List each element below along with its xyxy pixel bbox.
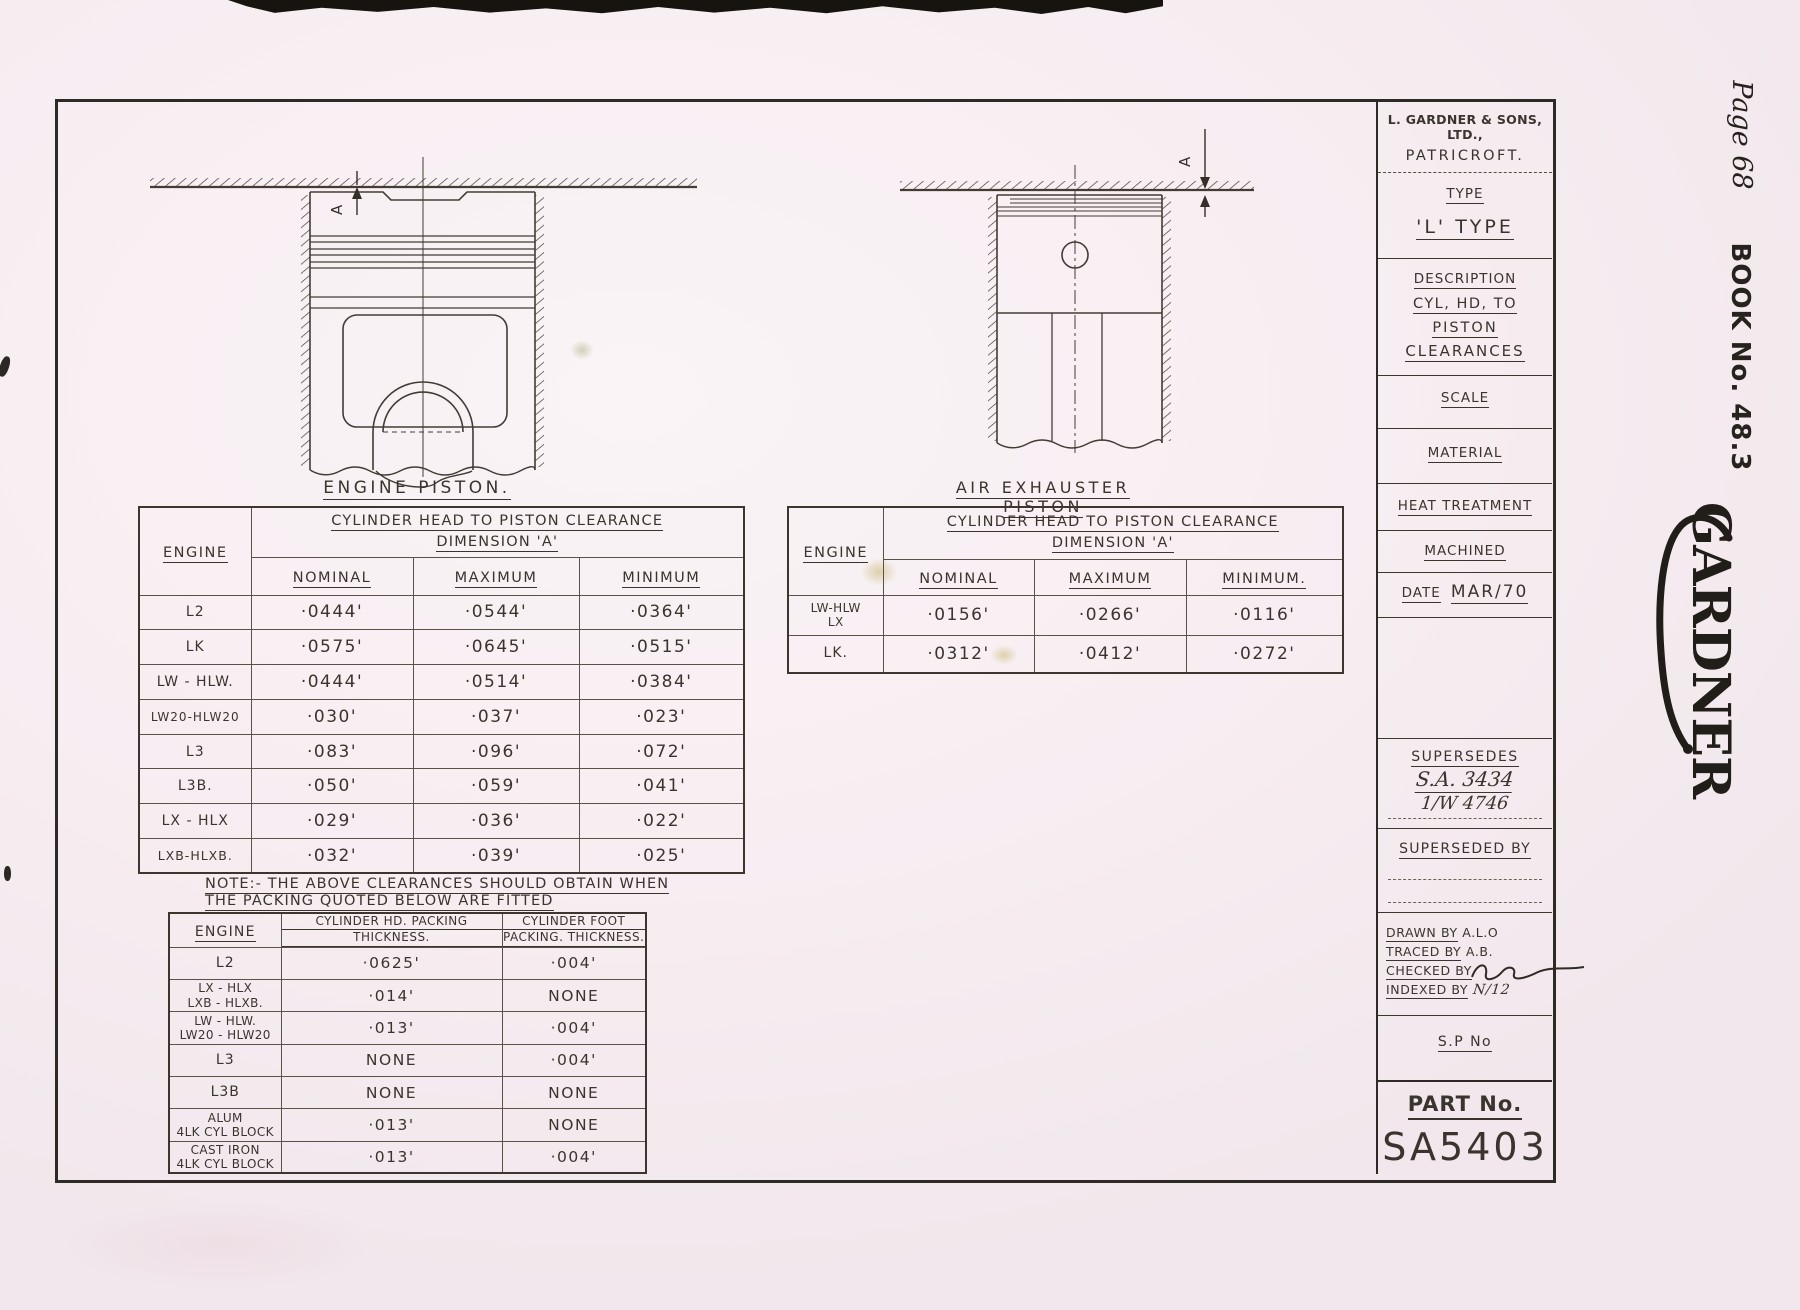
type-label: TYPE — [1446, 186, 1483, 204]
table-row: LW - HLW. LW20 - HLW20 ·013' ·004' — [169, 1012, 646, 1044]
cell-head-packing: ·013' — [281, 1012, 502, 1044]
cell-minimum: ·022' — [579, 804, 744, 839]
company-name: L. GARDNER & SONS, LTD., — [1378, 112, 1552, 142]
cell-maximum: ·0544' — [413, 595, 579, 630]
cell-engine: LX - HLX LXB - HLXB. — [169, 980, 281, 1012]
cell-engine: ALUM 4LK CYL BLOCK — [169, 1109, 281, 1141]
cell-minimum: ·025' — [579, 839, 744, 874]
table-row: LW20-HLW20 ·030' ·037' ·023' — [139, 699, 744, 734]
table-row: LX - HLX LXB - HLXB. ·014' NONE — [169, 980, 646, 1012]
clearance-note: NOTE:- THE ABOVE CLEARANCES SHOULD OBTAI… — [205, 876, 675, 910]
supersedes-value: 1/W 4746 — [1420, 793, 1510, 814]
cell-nominal: ·083' — [251, 734, 413, 769]
scale-label: SCALE — [1441, 390, 1489, 408]
paper-stain — [60, 1200, 380, 1290]
company-location: PATRICROFT. — [1378, 148, 1552, 164]
heat-treatment-label: HEAT TREATMENT — [1398, 498, 1533, 516]
dim-a-label: A — [1176, 156, 1194, 167]
engine-clearance-table: ENGINE CYLINDER HEAD TO PISTON CLEARANCE… — [138, 506, 745, 874]
cell-engine: LW20-HLW20 — [139, 699, 251, 734]
cell-minimum: ·041' — [579, 769, 744, 804]
col-header-minimum: MINIMUM. — [1186, 559, 1343, 595]
scan-edge-artifact — [228, 0, 1163, 14]
cell-maximum: ·0645' — [413, 630, 579, 665]
ink-speck — [0, 355, 12, 378]
gardner-logo-art: GARDNER — [1645, 500, 1755, 800]
traced-by-label: TRACED BY — [1386, 944, 1461, 961]
description-line: CYL, HD, TO — [1413, 296, 1517, 314]
table-row: L3 ·083' ·096' ·072' — [139, 734, 744, 769]
span-header: CYLINDER HEAD TO PISTON CLEARANCE DIMENS… — [883, 507, 1343, 559]
gardner-logo: GARDNER — [1645, 500, 1755, 800]
cell-foot-packing: ·004' — [502, 947, 646, 979]
cell-nominal: ·030' — [251, 699, 413, 734]
cell-engine: LK. — [788, 635, 883, 673]
note-line1: NOTE:- THE ABOVE CLEARANCES SHOULD OBTAI… — [205, 876, 669, 894]
cell-foot-packing: NONE — [502, 980, 646, 1012]
col-header-engine: ENGINE — [139, 507, 251, 595]
cell-engine: CAST IRON 4LK CYL BLOCK — [169, 1141, 281, 1173]
engine-piston-caption: ENGINE PISTON. — [317, 478, 517, 498]
cell-minimum: ·023' — [579, 699, 744, 734]
dimension-a-exhauster: A — [1176, 129, 1210, 217]
cell-engine: LXB-HLXB. — [139, 839, 251, 874]
blank-section — [1378, 617, 1552, 738]
page-number: Page 68 — [1727, 75, 1757, 195]
cell-maximum: ·096' — [413, 734, 579, 769]
cell-engine: L3B — [169, 1076, 281, 1108]
col-header-maximum: MAXIMUM — [413, 557, 579, 595]
cell-minimum: ·072' — [579, 734, 744, 769]
cell-minimum: ·0364' — [579, 595, 744, 630]
table-row: LXB-HLXB. ·032' ·039' ·025' — [139, 839, 744, 874]
cell-head-packing: ·013' — [281, 1141, 502, 1173]
indexed-by-value: N/12 — [1472, 982, 1511, 998]
description-section: DESCRIPTION CYL, HD, TO PISTON CLEARANCE… — [1378, 258, 1552, 375]
span-header: CYLINDER HEAD TO PISTON CLEARANCE DIMENS… — [251, 507, 744, 557]
cell-nominal: ·050' — [251, 769, 413, 804]
table-row: LW - HLW. ·0444' ·0514' ·0384' — [139, 665, 744, 700]
col-header-engine: ENGINE — [788, 507, 883, 595]
part-no-label: PART No. — [1408, 1092, 1523, 1120]
cell-minimum: ·0272' — [1186, 635, 1343, 673]
cell-nominal: ·0444' — [251, 595, 413, 630]
cell-head-packing: NONE — [281, 1076, 502, 1108]
cell-maximum: ·036' — [413, 804, 579, 839]
type-value: 'L' TYPE — [1416, 216, 1514, 240]
description-line: PISTON — [1432, 320, 1497, 338]
cell-nominal: ·0312' — [883, 635, 1034, 673]
cell-foot-packing: NONE — [502, 1109, 646, 1141]
supersedes-section: SUPERSEDES S.A. 3434 1/W 4746 — [1378, 738, 1552, 828]
piston-outline — [988, 165, 1171, 453]
checked-by-signature — [1468, 957, 1578, 983]
cell-minimum: ·0515' — [579, 630, 744, 665]
date-value: MAR/70 — [1451, 582, 1528, 604]
cell-minimum: ·0116' — [1186, 595, 1343, 635]
cell-maximum: ·0266' — [1034, 595, 1186, 635]
note-line2: THE PACKING QUOTED BELOW ARE FITTED — [205, 893, 554, 911]
supersedes-label: SUPERSEDES — [1411, 749, 1518, 767]
table-row: ALUM 4LK CYL BLOCK ·013' NONE — [169, 1109, 646, 1141]
dim-a-label: A — [328, 204, 346, 215]
date-section: DATE MAR/70 — [1378, 572, 1552, 617]
cell-maximum: ·0412' — [1034, 635, 1186, 673]
engine-piston-drawing: A — [130, 115, 750, 510]
table-row: LK. ·0312' ·0412' ·0272' — [788, 635, 1343, 673]
drawn-by-value: A.L.O — [1462, 925, 1498, 940]
exhauster-clearance-table: ENGINE CYLINDER HEAD TO PISTON CLEARANCE… — [787, 506, 1344, 674]
drawn-by-label: DRAWN BY — [1386, 925, 1458, 942]
cell-engine: L3 — [139, 734, 251, 769]
cell-head-packing: ·013' — [281, 1109, 502, 1141]
cell-engine: LK — [139, 630, 251, 665]
cell-engine: LW-HLW LX — [788, 595, 883, 635]
table-row: LK ·0575' ·0645' ·0515' — [139, 630, 744, 665]
cell-nominal: ·032' — [251, 839, 413, 874]
col-header-minimum: MINIMUM — [579, 557, 744, 595]
cell-engine: L2 — [139, 595, 251, 630]
machined-label: MACHINED — [1424, 543, 1505, 561]
cell-maximum: ·059' — [413, 769, 579, 804]
cell-nominal: ·029' — [251, 804, 413, 839]
heat-treatment-section: HEAT TREATMENT — [1378, 483, 1552, 530]
scanned-drawing-page: Page 68 BOOK No. 48.3 GARDNER — [0, 0, 1800, 1310]
col-header-engine: ENGINE — [169, 913, 281, 947]
book-number: BOOK No. 48.3 — [1725, 232, 1755, 482]
ink-speck — [4, 866, 11, 881]
cell-engine: LW - HLW. — [139, 665, 251, 700]
table-row: LW-HLW LX ·0156' ·0266' ·0116' — [788, 595, 1343, 635]
signatures-section: DRAWN BY A.L.O TRACED BY A.B. CHECKED BY… — [1378, 912, 1552, 1015]
cell-foot-packing: NONE — [502, 1076, 646, 1108]
indexed-by-label: INDEXED BY — [1386, 982, 1468, 999]
col-header-nominal: NOMINAL — [251, 557, 413, 595]
cell-engine: L3 — [169, 1044, 281, 1076]
sp-no-section: S.P No — [1378, 1015, 1552, 1080]
dimension-a-engine: A — [328, 171, 362, 215]
part-no-section: PART No. SA5403 — [1378, 1080, 1552, 1180]
supersedes-value: S.A. 3434 — [1415, 767, 1515, 793]
superseded-by-label: SUPERSEDED BY — [1399, 841, 1531, 859]
cell-maximum: ·0514' — [413, 665, 579, 700]
cell-foot-packing: ·004' — [502, 1141, 646, 1173]
cell-engine: L2 — [169, 947, 281, 979]
title-block: L. GARDNER & SONS, LTD., PATRICROFT. TYP… — [1376, 102, 1552, 1174]
cell-foot-packing: ·004' — [502, 1044, 646, 1076]
material-label: MATERIAL — [1428, 445, 1503, 463]
cell-foot-packing: ·004' — [502, 1012, 646, 1044]
cell-nominal: ·0444' — [251, 665, 413, 700]
sp-no-label: S.P No — [1438, 1034, 1492, 1052]
packing-table: ENGINE CYLINDER HD. PACKING THICKNESS. C… — [168, 912, 647, 1174]
col-header-foot-packing: CYLINDER FOOT PACKING. THICKNESS. — [502, 913, 646, 947]
material-section: MATERIAL — [1378, 428, 1552, 483]
description-line: CLEARANCES — [1405, 342, 1524, 362]
table-row: CAST IRON 4LK CYL BLOCK ·013' ·004' — [169, 1141, 646, 1173]
cell-engine: L3B. — [139, 769, 251, 804]
part-no-value: SA5403 — [1378, 1125, 1552, 1169]
table-row: L3B. ·050' ·059' ·041' — [139, 769, 744, 804]
table-row: LX - HLX ·029' ·036' ·022' — [139, 804, 744, 839]
table-row: L2 ·0625' ·004' — [169, 947, 646, 979]
superseded-by-section: SUPERSEDED BY — [1378, 828, 1552, 912]
cell-engine: LX - HLX — [139, 804, 251, 839]
col-header-head-packing: CYLINDER HD. PACKING THICKNESS. — [281, 913, 502, 947]
scale-section: SCALE — [1378, 375, 1552, 428]
col-header-nominal: NOMINAL — [883, 559, 1034, 595]
table-row: L2 ·0444' ·0544' ·0364' — [139, 595, 744, 630]
cell-maximum: ·037' — [413, 699, 579, 734]
cell-nominal: ·0575' — [251, 630, 413, 665]
cell-head-packing: ·0625' — [281, 947, 502, 979]
cell-head-packing: ·014' — [281, 980, 502, 1012]
cell-maximum: ·039' — [413, 839, 579, 874]
cell-minimum: ·0384' — [579, 665, 744, 700]
cell-nominal: ·0156' — [883, 595, 1034, 635]
cell-head-packing: NONE — [281, 1044, 502, 1076]
description-label: DESCRIPTION — [1414, 271, 1516, 289]
table-row: L3B NONE NONE — [169, 1076, 646, 1108]
cylinder-head-line — [900, 181, 1254, 190]
cell-engine: LW - HLW. LW20 - HLW20 — [169, 1012, 281, 1044]
table-row: L3 NONE ·004' — [169, 1044, 646, 1076]
checked-by-label: CHECKED BY — [1386, 963, 1472, 980]
col-header-maximum: MAXIMUM — [1034, 559, 1186, 595]
air-exhauster-drawing: A — [860, 115, 1280, 510]
machined-section: MACHINED — [1378, 530, 1552, 572]
type-section: TYPE 'L' TYPE — [1378, 172, 1552, 258]
date-label: DATE — [1402, 585, 1441, 603]
logo-text: GARDNER — [1680, 502, 1741, 800]
company-section: L. GARDNER & SONS, LTD., PATRICROFT. — [1378, 102, 1552, 172]
